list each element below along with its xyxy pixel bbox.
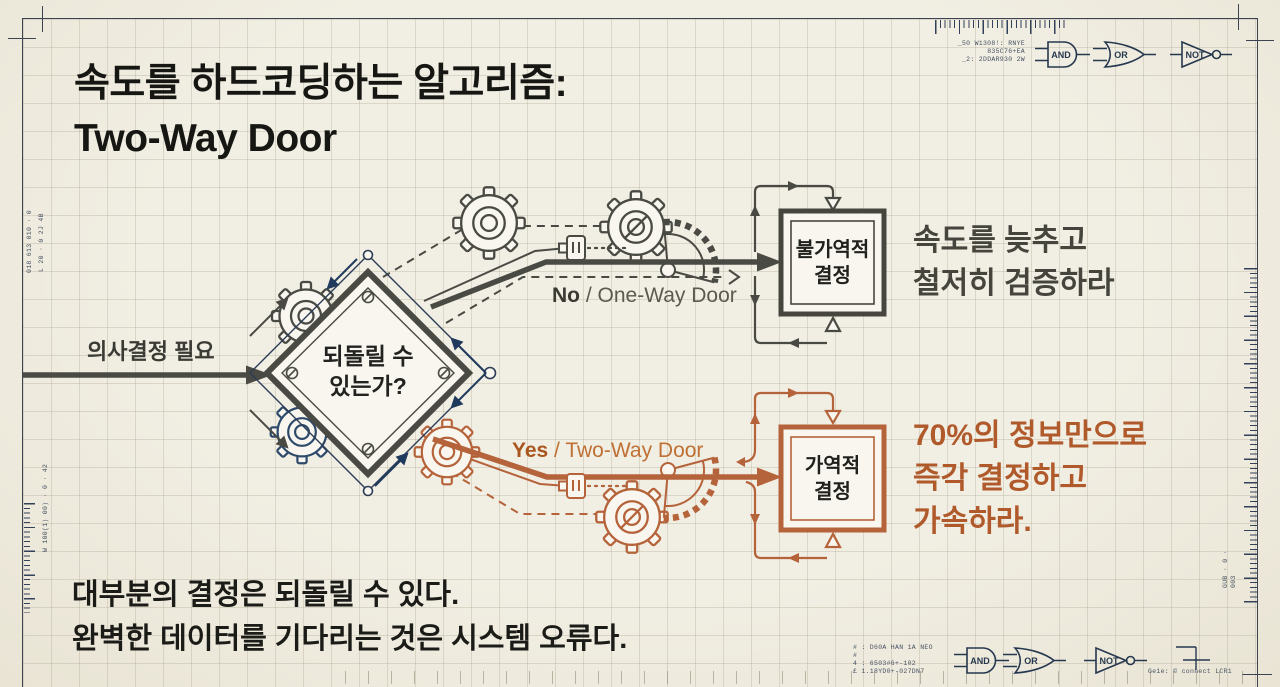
- reversible-box-text: 가역적결정: [781, 427, 884, 530]
- gear-no-cluster-icon: [600, 191, 671, 262]
- not-gate-label: NOT: [1186, 50, 1206, 60]
- irreversible-box-text: 불가역적결정: [781, 211, 884, 314]
- gear-sector-yes-icon: [661, 458, 716, 518]
- title-line-1: 속도를 하드코딩하는 알고리즘:: [74, 56, 567, 111]
- and-gate-label: AND: [1051, 50, 1071, 60]
- bottom-right-gate-label: Ge1e: © connect LCR1: [1148, 668, 1232, 676]
- or-gate-label: OR: [1114, 50, 1128, 60]
- gear-top-right-icon: [453, 187, 524, 258]
- top-right-part-codes: _50 W1308!: RNYE 835C76+EA _2: 2DDAR930 …: [950, 40, 1025, 64]
- or-gate-label: OR: [1024, 656, 1038, 666]
- tee-junction-icon: [1176, 647, 1210, 670]
- footer-statement: 대부분의 결정은 되돌릴 수 있다. 완벽한 데이터를 기다리는 것은 시스템 …: [72, 574, 627, 661]
- logic-gates-top: AND OR NOT: [1035, 42, 1232, 67]
- dashed-route-arrowhead: [729, 270, 739, 284]
- no-branch-note: 속도를 늦추고 철저히 검증하라: [913, 220, 1115, 305]
- bottom-part-codes: # : D60A HAN 1A NEO # 4 : 6503#6+-102 £ …: [853, 644, 933, 677]
- and-gate-label: AND: [970, 656, 990, 666]
- input-arrow: [23, 366, 272, 385]
- left-margin-code-2: L 20 · 0 2J 4B: [38, 192, 46, 272]
- title-line-2: Two-Way Door: [74, 111, 567, 166]
- page-title: 속도를 하드코딩하는 알고리즘: Two-Way Door: [74, 56, 567, 167]
- infographic-canvas: AND OR NOT AND: [0, 0, 1280, 687]
- decision-diamond-text: 되돌릴 수 있는가?: [288, 342, 448, 402]
- yes-branch-note: 70%의 정보만으로 즉각 결정하고 가속하라.: [913, 415, 1147, 544]
- no-branch-label: No / One-Way Door: [552, 284, 737, 308]
- right-margin-code: GUB · 0 · 003: [1222, 543, 1238, 588]
- left-margin-code-3: W 100(1) 00) · 0 · 42: [42, 462, 50, 552]
- input-label: 의사결정 필요: [87, 334, 215, 366]
- not-gate-label: NOT: [1100, 656, 1120, 666]
- yes-branch-label: Yes / Two-Way Door: [512, 439, 703, 463]
- gear-yes-cluster-icon: [596, 481, 667, 552]
- left-margin-code-1: 018 613 010 · 0: [26, 188, 34, 273]
